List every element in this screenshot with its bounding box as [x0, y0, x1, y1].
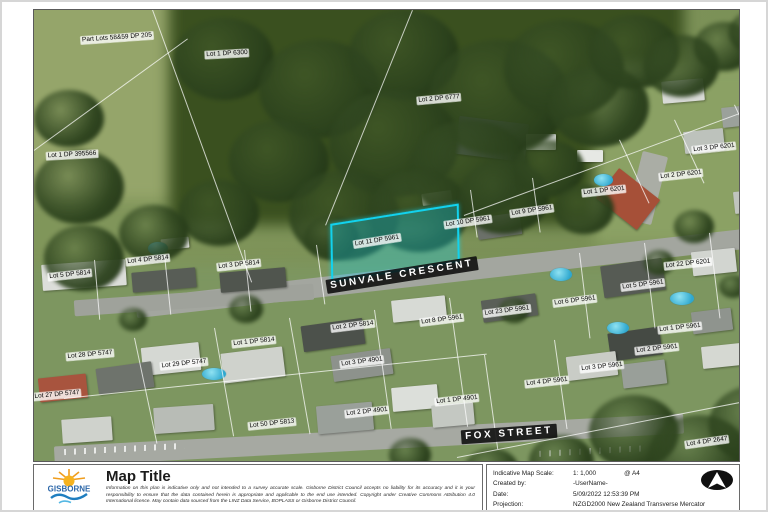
council-logo: GISBORNE [41, 467, 97, 509]
footer-info-panel: Indicative Map Scale: 1: 1,000 @ A4 Crea… [486, 464, 740, 511]
tree-canopy [34, 150, 124, 224]
swimming-pool [607, 322, 629, 334]
swimming-pool [594, 174, 613, 186]
aerial-map-layers: Part Lots 58&59 DP 205Lot 1 DP 6300Lot 2… [34, 10, 739, 461]
created-by-label: Created by: [493, 479, 573, 489]
scale-value: 1: 1,000 [573, 469, 596, 479]
map-export-page: Part Lots 58&59 DP 205Lot 1 DP 6300Lot 2… [0, 0, 768, 512]
tree-canopy [229, 295, 263, 323]
tree-canopy [34, 90, 104, 147]
projection-row: Projection: NZGD2000 New Zealand Transve… [493, 500, 733, 510]
created-by-row: Created by: -UserName- [493, 479, 733, 489]
house-roof [61, 416, 113, 443]
scale-row: Indicative Map Scale: 1: 1,000 @ A4 [493, 469, 733, 479]
disclaimer-text: Information on this plan is indicative o… [106, 486, 475, 505]
date-label: Date: [493, 490, 573, 500]
projection-value: NZGD2000 New Zealand Transverse Mercator [573, 500, 705, 510]
tree-canopy [719, 275, 740, 298]
house-roof [733, 188, 740, 214]
house-roof [701, 343, 740, 369]
map-viewport: Part Lots 58&59 DP 205Lot 1 DP 6300Lot 2… [33, 9, 740, 462]
date-row: Date: 5/09/2022 12:53:39 PM [493, 490, 733, 500]
swimming-pool [550, 268, 572, 281]
tree-canopy [119, 308, 147, 331]
tree-canopy [119, 205, 189, 262]
page-size: @ A4 [624, 469, 640, 479]
projection-label: Projection: [493, 500, 573, 510]
tree-canopy [44, 225, 124, 291]
date-value: 5/09/2022 12:53:39 PM [573, 490, 639, 500]
north-arrow-icon [700, 469, 734, 491]
footer-title-panel: GISBORNE Map Title Information on this p… [33, 464, 483, 511]
house-roof [153, 404, 215, 434]
swimming-pool [670, 292, 694, 305]
tree-canopy [674, 210, 714, 243]
scale-label: Indicative Map Scale: [493, 469, 573, 479]
map-title: Map Title [106, 469, 475, 485]
logo-wordmark: GISBORNE [48, 484, 91, 493]
created-by-value: -UserName- [573, 479, 608, 489]
